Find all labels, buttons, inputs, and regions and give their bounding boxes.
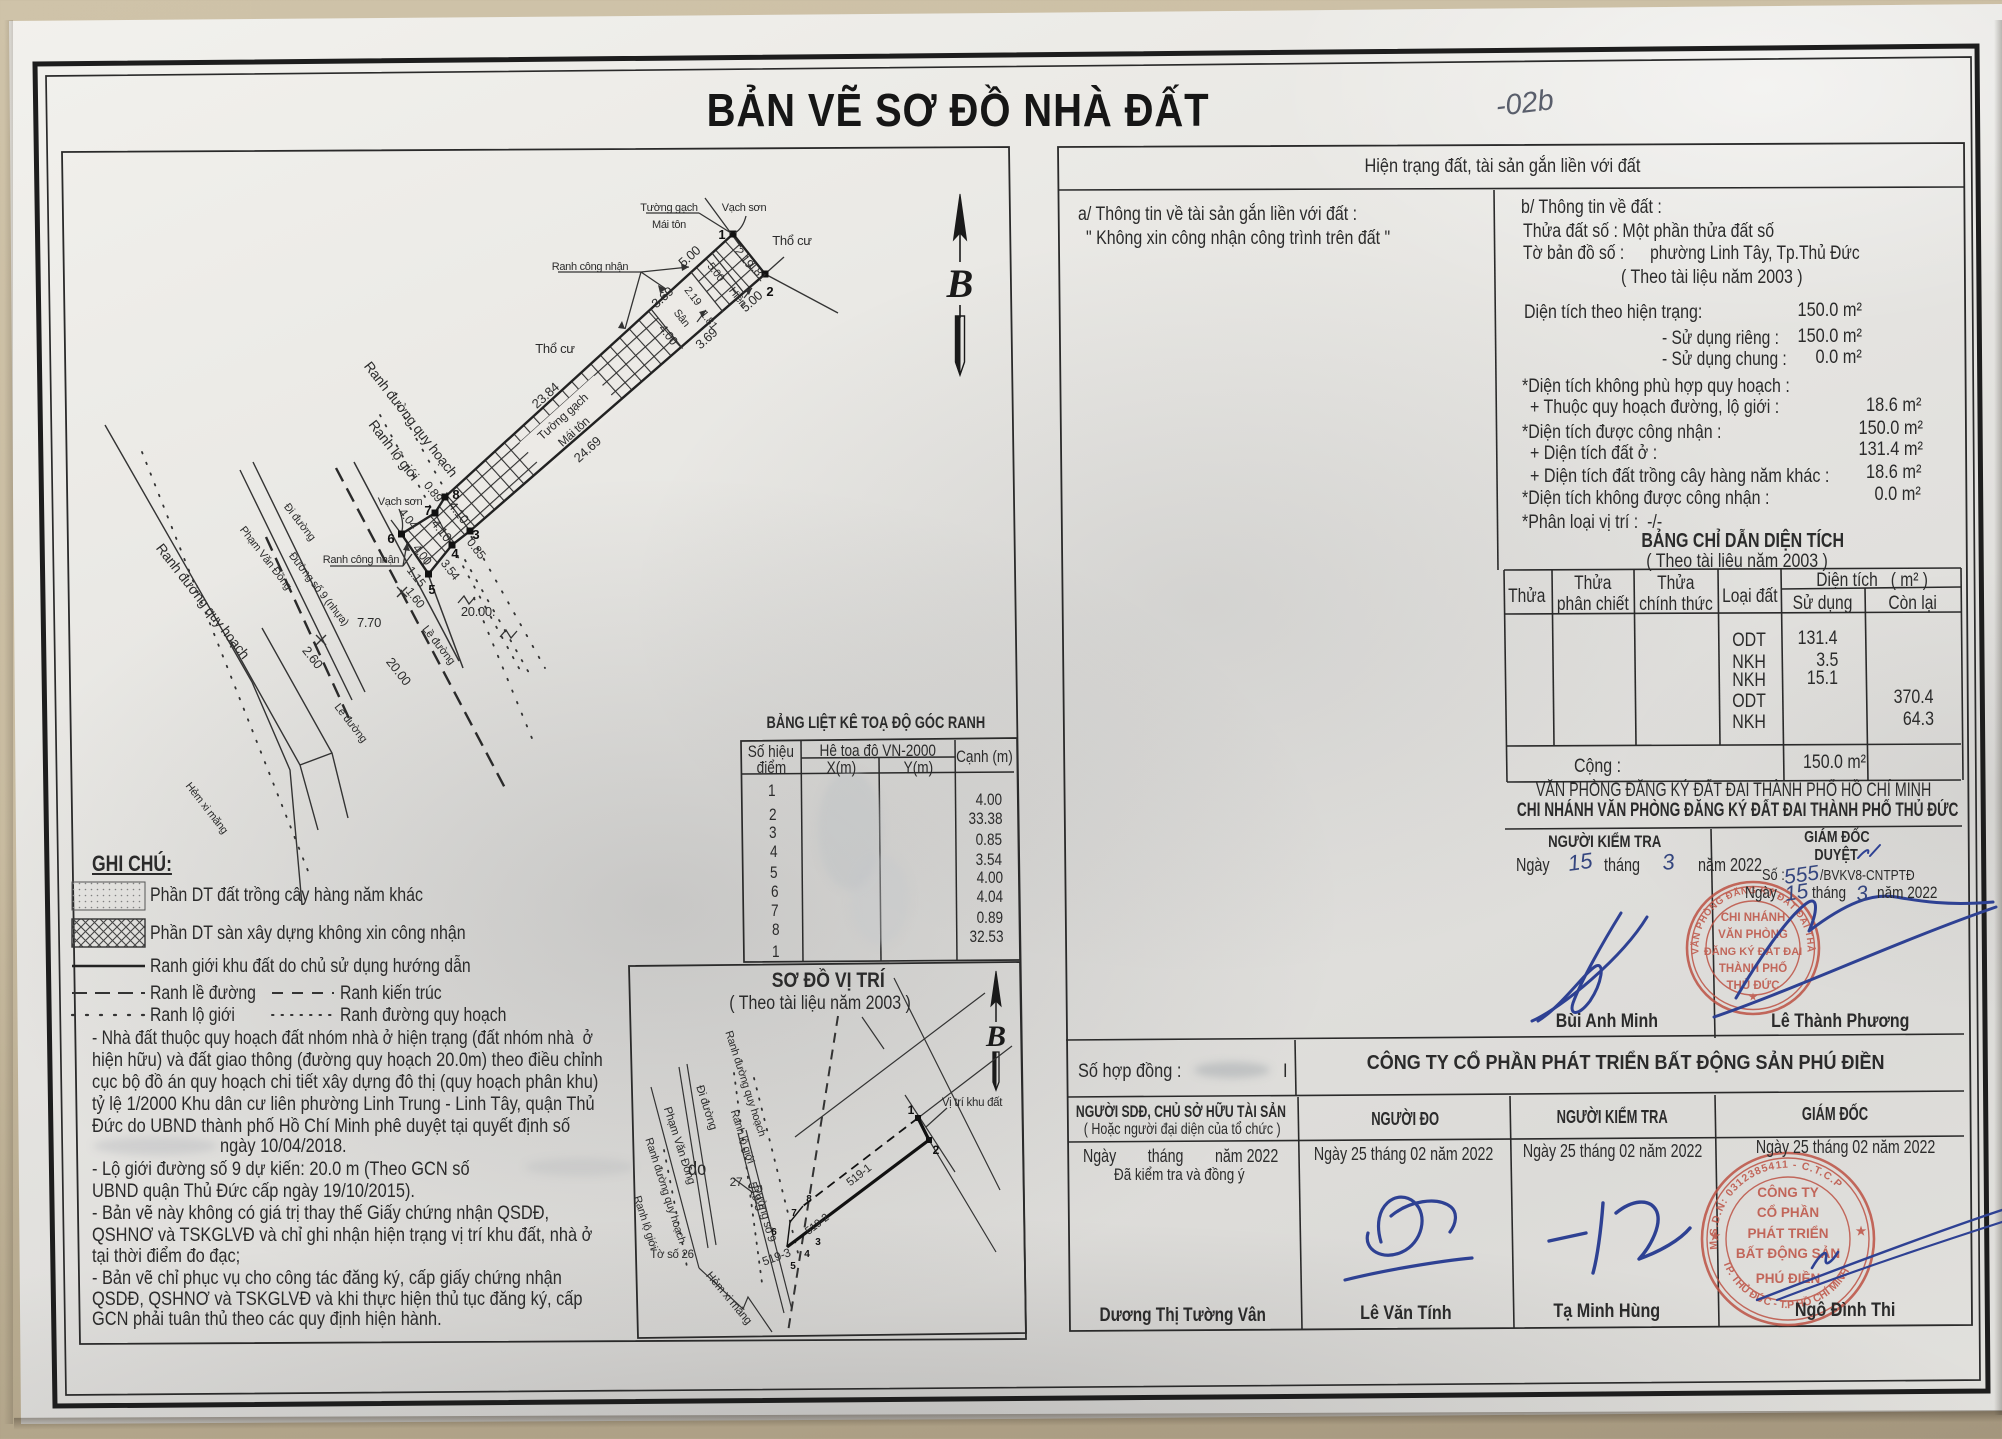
- svg-text:Đi đường: Đi đường: [281, 501, 318, 543]
- svg-text:4: 4: [804, 1249, 810, 1260]
- svg-text:8: 8: [806, 1194, 812, 1205]
- svg-text:Thổ cư: Thổ cư: [535, 341, 575, 356]
- svg-text:CỔ PHẦN: CỔ PHẦN: [1757, 1205, 1819, 1220]
- svg-text:Lề đường: Lề đường: [332, 701, 370, 745]
- svg-text:Tờ số 26: Tờ số 26: [650, 1249, 694, 1261]
- svg-text:1: 1: [718, 227, 725, 242]
- svg-text:7.70: 7.70: [357, 615, 381, 630]
- svg-text:CHI NHÁNH: CHI NHÁNH: [1721, 911, 1786, 924]
- svg-text:B: B: [985, 1020, 1006, 1053]
- svg-text:THỦ ĐỨC: THỦ ĐỨC: [1727, 979, 1780, 992]
- svg-text:1.60: 1.60: [403, 585, 428, 612]
- svg-text:2: 2: [766, 284, 773, 299]
- svg-text:8: 8: [452, 487, 459, 502]
- svg-text:20.00: 20.00: [383, 654, 414, 688]
- svg-text:27: 27: [730, 1175, 743, 1189]
- svg-text:Ranh công nhận: Ranh công nhận: [323, 554, 400, 566]
- svg-text:Ranh đường quy hoạch: Ranh đường quy hoạch: [153, 540, 253, 662]
- svg-text:3: 3: [1855, 882, 1870, 906]
- svg-text:PHÁT TRIỂN: PHÁT TRIỂN: [1748, 1226, 1829, 1241]
- svg-text:6: 6: [771, 1227, 777, 1238]
- svg-text:3: 3: [472, 527, 479, 542]
- svg-text:Vạch sơn: Vạch sơn: [722, 202, 767, 214]
- svg-text:Ranh đường quy hoạch: Ranh đường quy hoạch: [722, 1029, 767, 1138]
- svg-text:Phạm Văn Đồng: Phạm Văn Đồng: [237, 524, 294, 592]
- svg-text:Thổ cư: Thổ cư: [772, 233, 812, 248]
- svg-text:3: 3: [815, 1237, 821, 1248]
- svg-text:B: B: [946, 261, 974, 306]
- svg-text:7: 7: [791, 1208, 797, 1219]
- svg-text:6: 6: [387, 531, 394, 546]
- svg-text:Hẻm xi măng: Hẻm xi măng: [183, 780, 230, 836]
- svg-text:-02b: -02b: [1494, 84, 1556, 123]
- svg-text:2: 2: [933, 1143, 940, 1157]
- svg-text:7: 7: [424, 503, 431, 518]
- svg-text:519-3: 519-3: [760, 1245, 793, 1268]
- svg-text:Tường gạch: Tường gạch: [640, 202, 698, 214]
- svg-text:5: 5: [428, 582, 435, 597]
- svg-text:5: 5: [790, 1261, 796, 1272]
- svg-text:★: ★: [1856, 1224, 1867, 1238]
- svg-text:ĐĂNG KÝ ĐẤT ĐAI: ĐĂNG KÝ ĐẤT ĐAI: [1704, 945, 1802, 958]
- svg-text:20.00.: 20.00.: [461, 604, 495, 619]
- svg-text:Ranh công nhận: Ranh công nhận: [552, 261, 629, 273]
- svg-text:4: 4: [451, 546, 459, 561]
- svg-text:Hẻm xi măng: Hẻm xi măng: [703, 1270, 754, 1327]
- svg-text:2.60: 2.60: [299, 643, 326, 671]
- svg-text:Mái tôn: Mái tôn: [652, 219, 686, 231]
- svg-text:CÔNG TY: CÔNG TY: [1757, 1185, 1819, 1200]
- svg-text:Vạch sơn: Vạch sơn: [378, 496, 423, 508]
